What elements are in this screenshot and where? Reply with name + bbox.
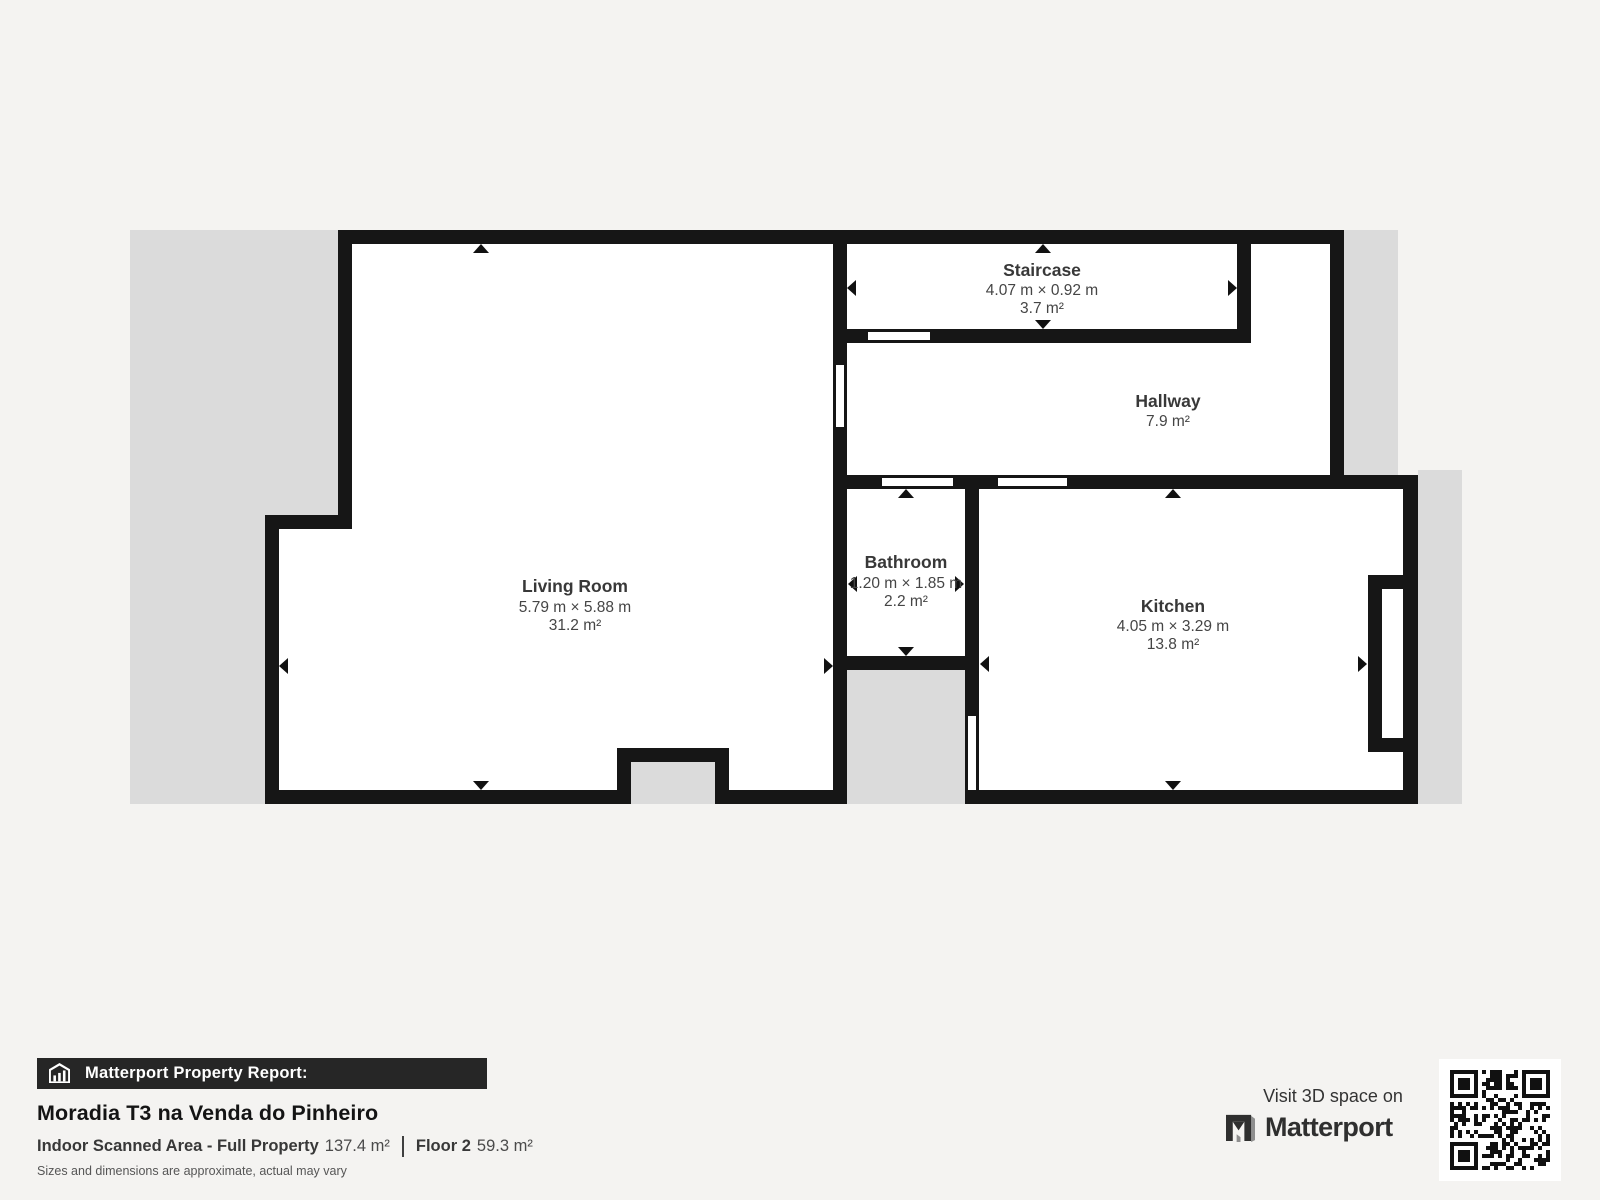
room-area-bathroom: 2.2 m² [884,593,928,610]
wall-hallway-right [1330,230,1344,475]
room-label-kitchen: Kitchen [1141,596,1205,616]
wall-notch-stub-left [617,748,631,804]
room-dims-staircase: 4.07 m × 0.92 m [986,282,1098,299]
room-dims-living-room: 5.79 m × 5.88 m [519,599,631,616]
room-area-staircase: 3.7 m² [1020,300,1064,317]
wall-notch-stub-right [715,748,729,804]
wall-living-left-upper [338,230,352,515]
meta-divider [402,1136,404,1157]
exterior-top-right [1344,230,1398,475]
room-area-kitchen: 13.8 m² [1147,636,1200,653]
room-label-hallway: Hallway [1135,391,1200,411]
qr-code [1439,1059,1561,1181]
room-label-bathroom: Bathroom [865,552,948,572]
wall-notch-cap [617,748,729,762]
qr-code-pattern [1450,1070,1550,1170]
window-opening-kitchen [968,716,976,790]
wall-kitchen-right [1403,475,1418,804]
room-floor-living-room-upper [352,244,833,529]
wall-kitchen-recess-bottom [1368,738,1403,752]
scanned-area-label: Indoor Scanned Area - Full Property [37,1137,319,1156]
room-label-living-room: Living Room [522,576,628,596]
room-dims-kitchen: 4.05 m × 3.29 m [1117,618,1229,635]
wall-bathroom-bottom [833,656,979,670]
window-opening-staircase [868,332,930,340]
report-banner: Matterport Property Report: [37,1058,487,1089]
wall-living-bottom-left [265,790,631,804]
room-floor-hallway [847,343,1330,475]
matterport-logo: Matterport [1224,1112,1424,1143]
room-dims-bathroom: 1.20 m × 1.85 m [850,575,962,592]
matterport-wordmark: Matterport [1265,1112,1393,1143]
wall-kitchen-recess-left [1368,575,1382,752]
exterior-left-lower [130,517,272,804]
room-floor-living-room-lower [279,529,833,790]
door-opening-kitchen [998,478,1067,486]
floor-label: Floor 2 [416,1137,471,1156]
floor-plan: Staircase 4.07 m × 0.92 m 3.7 m² Hallway… [0,0,1600,1200]
scanned-area-value: 137.4 m² [325,1137,390,1156]
room-label-staircase: Staircase [1003,260,1081,280]
room-area-hallway: 7.9 m² [1146,413,1190,430]
wall-living-right [833,230,847,804]
property-report-page: Staircase 4.07 m × 0.92 m 3.7 m² Hallway… [0,0,1600,1200]
house-chart-icon [48,1063,71,1084]
visit-3d-text: Visit 3D space on [1224,1086,1424,1107]
exterior-left-upper [130,230,345,517]
matterport-promo: Visit 3D space on Matterport [1224,1086,1424,1143]
room-area-living-room: 31.2 m² [549,617,602,634]
exterior-below-bathroom [847,656,965,804]
floor-value: 59.3 m² [477,1137,533,1156]
wall-staircase-right [1237,230,1251,343]
wall-kitchen-bottom [965,790,1418,804]
door-opening-bathroom [882,478,953,486]
room-floor-hallway-side [1251,244,1330,343]
wall-living-left-lower [265,515,279,804]
disclaimer: Sizes and dimensions are approximate, ac… [37,1164,557,1178]
area-summary: Indoor Scanned Area - Full Property 137.… [37,1136,557,1157]
door-opening-living-room [836,365,844,427]
property-name: Moradia T3 na Venda do Pinheiro [37,1101,557,1126]
exterior-bottom-notch [631,762,715,804]
matterport-mark-icon [1224,1113,1257,1142]
room-floor-bathroom [847,489,965,656]
report-info: Matterport Property Report: Moradia T3 n… [37,1058,557,1178]
wall-living-bottom-right [715,790,847,804]
banner-label: Matterport Property Report: [85,1064,308,1083]
wall-kitchen-recess-top [1368,575,1403,589]
exterior-kitchen-right [1418,470,1462,804]
